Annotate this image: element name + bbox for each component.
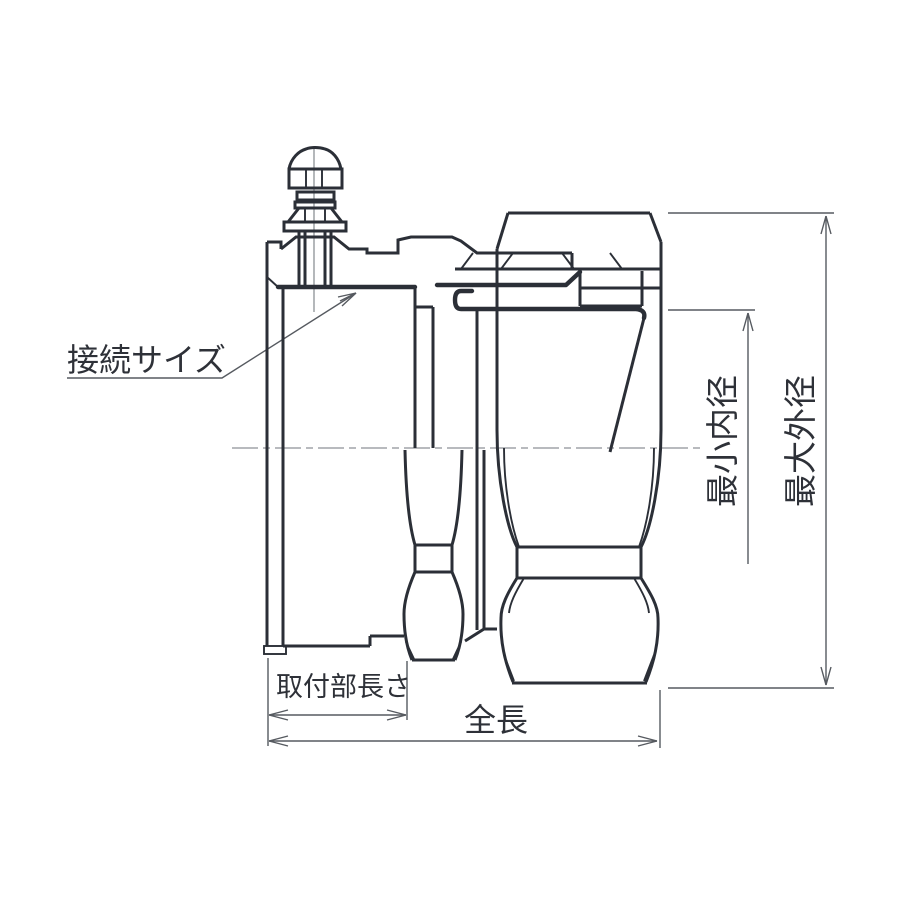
label-connection-size: 接続サイズ [67,341,226,379]
label-max-outer-diameter: 最大外径 [781,375,820,507]
label-mount-length: 取付部長さ [276,672,411,703]
label-min-inner-diameter: 最小内径 [703,375,742,507]
screw-assembly [284,148,346,288]
liner [437,271,661,452]
middle-nut [404,450,463,660]
label-total-length: 全長 [464,701,528,739]
body-and-sleeve [264,237,661,654]
connector-dimension-drawing: 接続サイズ 取付部長さ 全長 最小内径 最大外径 [0,0,907,907]
diagram-page: 接続サイズ 取付部長さ 全長 最小内径 最大外径 [0,0,907,907]
